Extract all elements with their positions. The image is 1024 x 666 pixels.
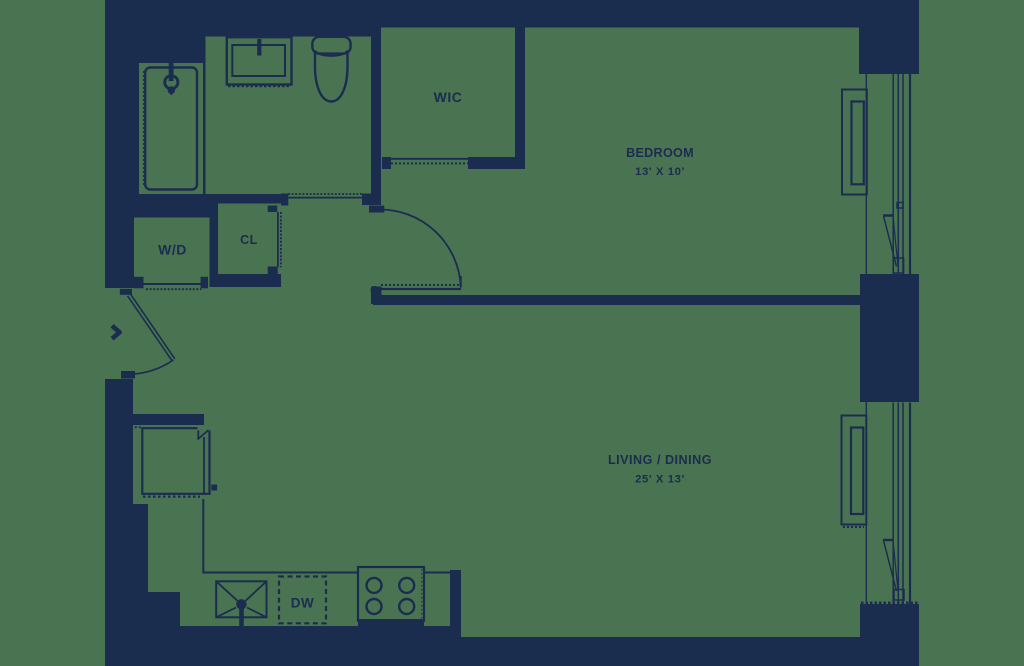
svg-text:BEDROOM: BEDROOM (626, 146, 694, 160)
svg-text:13' X 10': 13' X 10' (635, 166, 685, 178)
svg-text:W/D: W/D (158, 241, 187, 257)
svg-text:CL: CL (240, 233, 258, 247)
svg-text:WIC: WIC (434, 89, 463, 105)
svg-text:25' X 13': 25' X 13' (635, 474, 685, 486)
svg-text:LIVING / DINING: LIVING / DINING (608, 453, 712, 467)
svg-text:DW: DW (291, 595, 315, 610)
